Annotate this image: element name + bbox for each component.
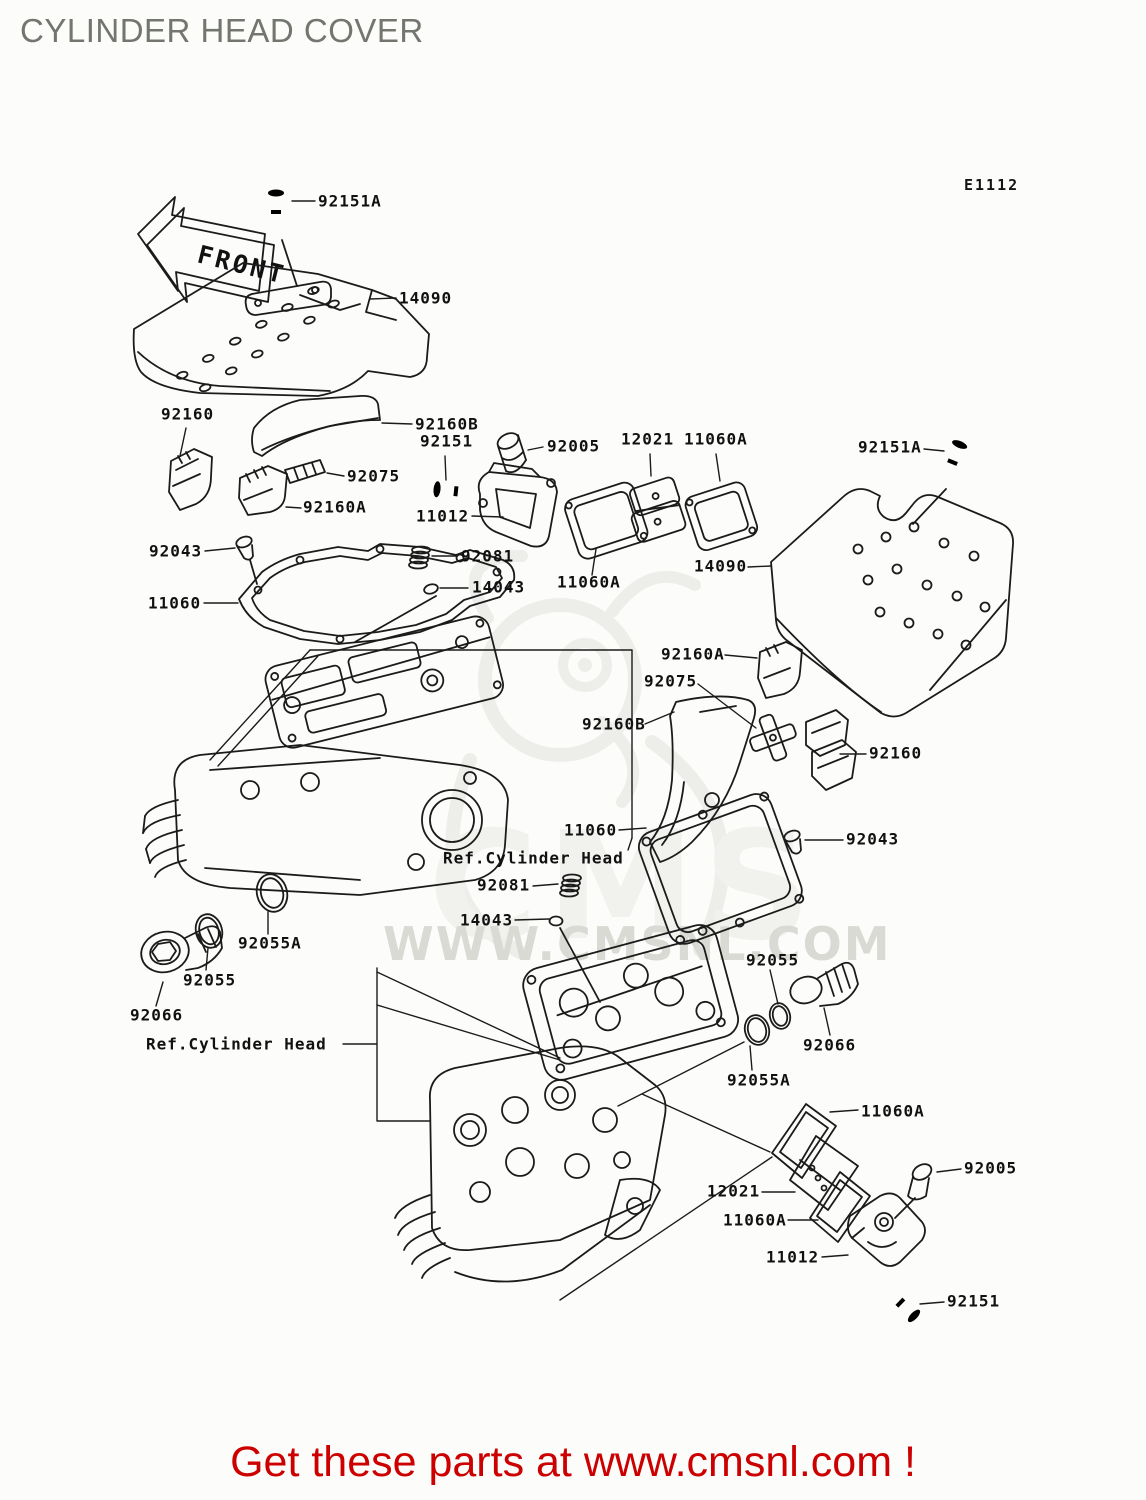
damper-92160-left [169, 449, 212, 510]
part-label-92160: 92160 [161, 405, 214, 424]
bolt-92151-top [433, 480, 481, 503]
sleeve-92005-bottom [895, 1161, 934, 1218]
part-label-11060a: 11060A [861, 1102, 925, 1121]
damper-92075-left [285, 460, 325, 483]
part-label-92055a: 92055A [238, 934, 302, 953]
part-label-ref-cylinder-head: Ref.Cylinder Head [443, 849, 624, 868]
gasket-11060a-top-1 [562, 480, 650, 561]
part-label-92160a: 92160A [303, 498, 367, 517]
part-label-92075: 92075 [347, 467, 400, 486]
cylinder-head-bottom-drawing [395, 1046, 666, 1281]
part-label-92160a: 92160A [661, 645, 725, 664]
holder-92075-right [743, 708, 802, 767]
part-label-92081: 92081 [461, 547, 514, 566]
part-label-92151: 92151 [420, 432, 473, 451]
footer-banner: Get these parts at www.cmsnl.com ! [0, 1438, 1146, 1487]
gasket-11060a-bottom-1 [772, 1104, 836, 1178]
part-label-92066: 92066 [130, 1006, 183, 1025]
part-label-92151: 92151 [947, 1292, 1000, 1311]
part-label-11060a: 11060A [557, 573, 621, 592]
parts-diagram-page: CYLINDER HEAD COVER E1112 CMS WWW.CMSNL.… [0, 0, 1146, 1500]
bolt-92151-bottom [877, 1280, 923, 1325]
part-label-92075: 92075 [644, 672, 697, 691]
cam-carrier-drawing [263, 614, 506, 751]
part-label-11012: 11012 [416, 507, 469, 526]
oring-92055a-right [742, 1012, 773, 1047]
holder-11012-bottom [848, 1193, 925, 1266]
part-label-11060a: 11060A [684, 430, 748, 449]
part-label-ref-cylinder-head: Ref.Cylinder Head [146, 1035, 327, 1054]
cover-92160b-left [252, 396, 380, 456]
damper-92160a-left [239, 466, 287, 515]
part-label-92043: 92043 [846, 830, 899, 849]
oring-92055a-left [253, 871, 292, 915]
part-label-92005: 92005 [547, 437, 600, 456]
part-label-11060: 11060 [564, 821, 617, 840]
part-label-92160: 92160 [869, 744, 922, 763]
part-label-92151a: 92151A [318, 192, 382, 211]
part-label-14090: 14090 [694, 557, 747, 576]
part-label-12021: 12021 [621, 430, 674, 449]
part-label-92005: 92005 [964, 1159, 1017, 1178]
exploded-parts-drawing: CMS WWW.CMSNL.COM FRONT [0, 0, 1146, 1500]
damper-92160-right [806, 710, 856, 790]
part-label-14043: 14043 [472, 578, 525, 597]
cover-14090-right [771, 489, 1013, 717]
part-label-92055a: 92055A [727, 1071, 791, 1090]
damper-92160a-right [758, 642, 802, 698]
part-label-11012: 11012 [766, 1248, 819, 1267]
part-label-11060a: 11060A [723, 1211, 787, 1230]
holder-11012-top [479, 463, 557, 547]
front-direction-arrow: FRONT [138, 197, 289, 302]
part-label-14090: 14090 [399, 289, 452, 308]
part-label-14043: 14043 [460, 911, 513, 930]
spring-92081-top [409, 547, 430, 569]
oring-92055-right [767, 1001, 793, 1031]
part-label-11060: 11060 [148, 594, 201, 613]
part-label-12021: 12021 [707, 1182, 760, 1201]
part-label-92151a: 92151A [858, 438, 922, 457]
gasket-11060a-top-2 [683, 480, 759, 552]
part-label-92160b: 92160B [582, 715, 646, 734]
part-label-92043: 92043 [149, 542, 202, 561]
part-label-92055: 92055 [183, 971, 236, 990]
part-label-92066: 92066 [803, 1036, 856, 1055]
reed-valve-12021-bottom [790, 1136, 858, 1210]
dowel-92043-left [235, 535, 257, 584]
part-label-92081: 92081 [477, 876, 530, 895]
part-label-92055: 92055 [746, 951, 799, 970]
